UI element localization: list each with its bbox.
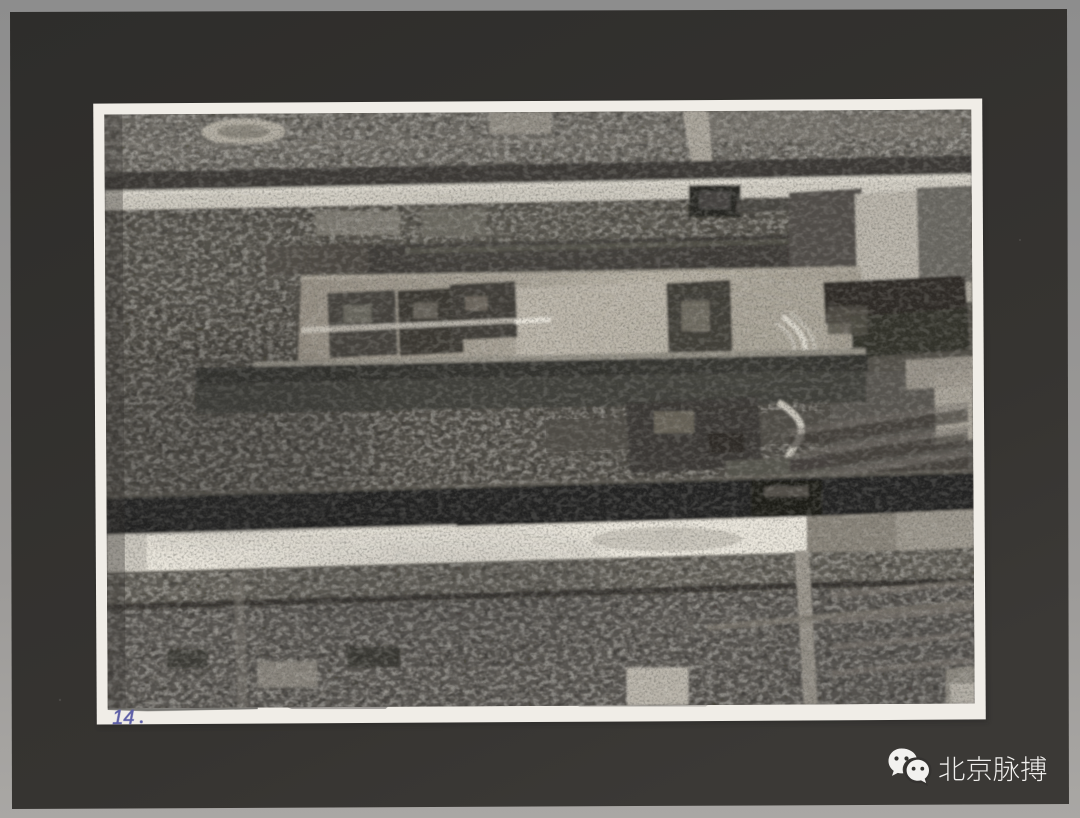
svg-text:14: 14 — [112, 707, 134, 729]
